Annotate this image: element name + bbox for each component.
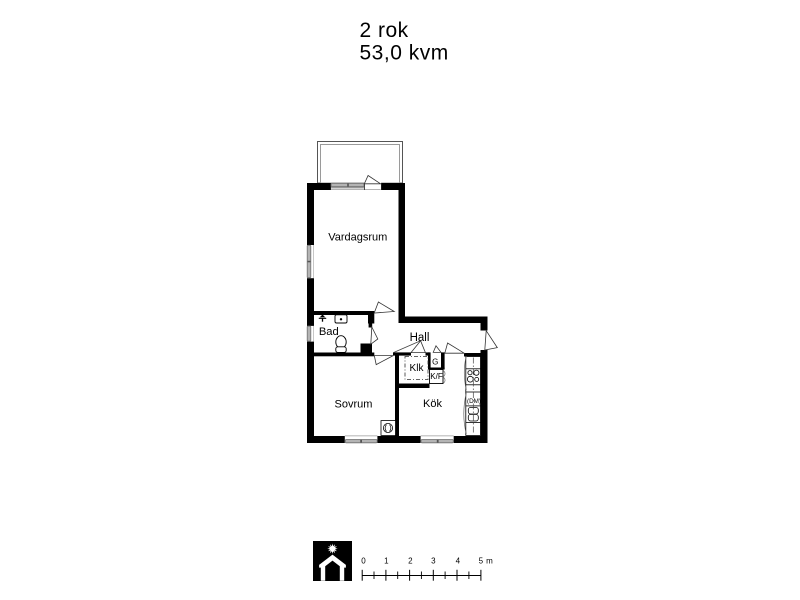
- svg-text:K/F: K/F: [430, 372, 443, 381]
- svg-text:2: 2: [408, 556, 413, 565]
- svg-text:3: 3: [431, 556, 436, 565]
- svg-text:5: 5: [479, 556, 484, 565]
- svg-text:2 rok: 2 rok: [360, 19, 409, 42]
- svg-text:Kök: Kök: [423, 398, 442, 410]
- svg-text:1: 1: [384, 556, 389, 565]
- svg-text:Bad: Bad: [319, 326, 339, 338]
- svg-text:(DM): (DM): [467, 398, 481, 405]
- svg-text:Klk: Klk: [410, 363, 425, 374]
- svg-text:Hall: Hall: [410, 332, 430, 344]
- svg-text:0: 0: [361, 556, 366, 565]
- svg-text:Sovrum: Sovrum: [335, 399, 373, 411]
- svg-text:G: G: [432, 357, 438, 366]
- svg-text:4: 4: [456, 556, 461, 565]
- svg-text:Vardagsrum: Vardagsrum: [328, 232, 387, 244]
- svg-text:53,0 kvm: 53,0 kvm: [360, 42, 449, 65]
- svg-text:m: m: [486, 556, 493, 565]
